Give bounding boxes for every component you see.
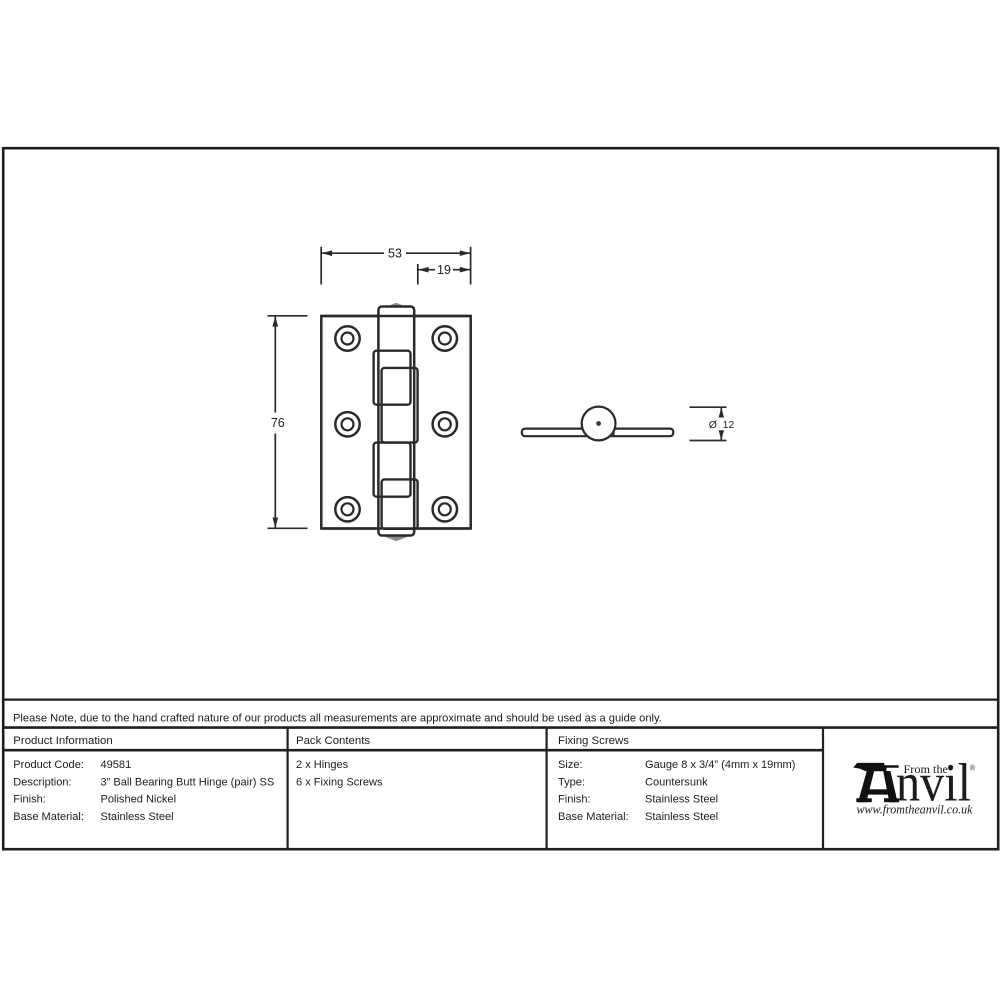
svg-text:Product Code:: Product Code:	[13, 759, 84, 771]
svg-text:53: 53	[388, 247, 402, 261]
svg-text:Finish:: Finish:	[558, 794, 591, 806]
svg-text:Type:: Type:	[558, 776, 585, 788]
svg-text:3” Ball Bearing Butt Hinge (pa: 3” Ball Bearing Butt Hinge (pair) SS	[101, 776, 275, 788]
svg-text:Stainless Steel: Stainless Steel	[101, 811, 174, 823]
svg-text:Description:: Description:	[13, 776, 71, 788]
svg-text:76: 76	[271, 416, 285, 430]
svg-text:2 x Hinges: 2 x Hinges	[296, 759, 349, 771]
svg-text:12: 12	[723, 419, 735, 431]
svg-text:Stainless Steel: Stainless Steel	[645, 794, 718, 806]
svg-text:Countersunk: Countersunk	[645, 776, 708, 788]
svg-text:Ø: Ø	[709, 419, 717, 431]
svg-text:49581: 49581	[101, 759, 132, 771]
svg-text:Base Material:: Base Material:	[558, 811, 629, 823]
svg-text:Please Note, due to the hand c: Please Note, due to the hand crafted nat…	[13, 712, 662, 724]
svg-text:6 x Fixing Screws: 6 x Fixing Screws	[296, 776, 383, 788]
svg-text:Size:: Size:	[558, 759, 583, 771]
svg-text:Polished Nickel: Polished Nickel	[101, 794, 177, 806]
svg-text:19: 19	[437, 263, 451, 277]
svg-text:®: ®	[970, 764, 976, 773]
svg-text:Pack Contents: Pack Contents	[296, 735, 370, 747]
svg-text:Gauge 8 x 3/4” (4mm x 19mm): Gauge 8 x 3/4” (4mm x 19mm)	[645, 759, 795, 771]
svg-text:Stainless Steel: Stainless Steel	[645, 811, 718, 823]
svg-text:Product Information: Product Information	[13, 735, 112, 747]
svg-text:Base Material:: Base Material:	[13, 811, 84, 823]
svg-text:Finish:: Finish:	[13, 794, 46, 806]
svg-text:www.fromtheanvil.co.uk: www.fromtheanvil.co.uk	[857, 803, 973, 817]
svg-text:Fixing Screws: Fixing Screws	[558, 735, 629, 747]
